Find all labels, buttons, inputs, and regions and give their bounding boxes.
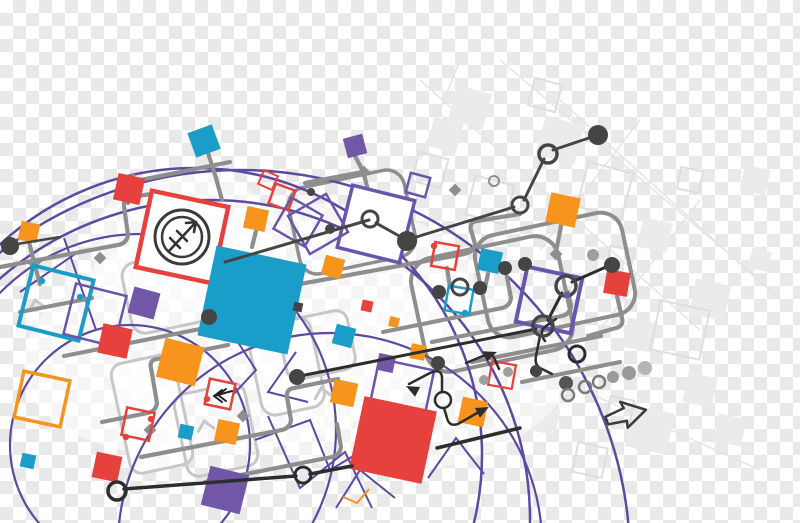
bg-square	[689, 279, 732, 322]
trail-dot	[559, 376, 573, 390]
bg-square	[536, 116, 585, 165]
illustration-svg	[0, 0, 800, 523]
node-dot	[397, 231, 417, 251]
bg-square	[748, 248, 772, 272]
filled-square	[178, 424, 195, 441]
trail-dot	[607, 371, 619, 383]
trail-dot-ring	[593, 376, 605, 388]
filled-square	[113, 173, 145, 205]
junction-node	[449, 184, 462, 197]
filled-square	[343, 134, 367, 158]
ring-node	[512, 197, 528, 213]
trail-dot	[622, 366, 636, 380]
node-dot	[289, 369, 305, 385]
ring-node	[108, 482, 126, 500]
filled-square	[243, 206, 269, 232]
node-dot	[498, 261, 512, 275]
node-dot	[530, 365, 542, 377]
node-dot	[1, 237, 19, 255]
node-dot-gray	[587, 249, 599, 261]
filled-square	[545, 192, 581, 228]
filled-square	[293, 302, 304, 313]
node-dot	[307, 188, 315, 196]
bg-square	[677, 167, 703, 193]
filled-square	[330, 379, 358, 407]
red-accent-dot	[431, 243, 437, 249]
node-dot-gray	[479, 375, 489, 385]
teal-accent-dot	[39, 278, 45, 284]
red-accent-dot	[123, 434, 129, 440]
red-accent-dot	[204, 396, 210, 402]
node-dot	[604, 257, 620, 273]
connector-path	[447, 268, 450, 287]
abstract-network-illustration	[0, 0, 800, 523]
network-line	[524, 159, 544, 200]
teal-accent-dot	[462, 310, 468, 316]
node-dot	[201, 309, 217, 325]
node-dot-gray	[503, 367, 513, 377]
filled-square	[92, 452, 123, 483]
filled-square	[187, 124, 220, 157]
filled-square	[97, 323, 133, 359]
bg-square	[572, 442, 608, 478]
red-accent-dot	[148, 416, 154, 422]
purple-accent-dot	[564, 292, 570, 298]
trail-dot	[638, 361, 652, 375]
node-dot	[518, 257, 532, 271]
bg-square	[528, 78, 562, 112]
node-dot	[588, 125, 608, 145]
node-dot	[431, 356, 445, 370]
filled-square	[214, 419, 240, 445]
bg-square	[682, 372, 718, 408]
network-line	[572, 267, 606, 282]
teal-accent-dot	[77, 294, 83, 300]
filled-square	[360, 299, 373, 312]
filled-square	[20, 453, 37, 470]
filled-square	[197, 245, 306, 354]
filled-square	[388, 316, 400, 328]
node-dot	[432, 285, 446, 299]
bg-square	[637, 217, 673, 253]
filled-square	[349, 396, 437, 484]
bg-square	[713, 413, 746, 446]
filled-square	[603, 269, 631, 297]
bg-square	[650, 300, 709, 359]
node-dot	[473, 281, 487, 295]
connector-path	[556, 226, 561, 252]
bg-square	[740, 165, 771, 196]
node-dot	[325, 224, 335, 234]
